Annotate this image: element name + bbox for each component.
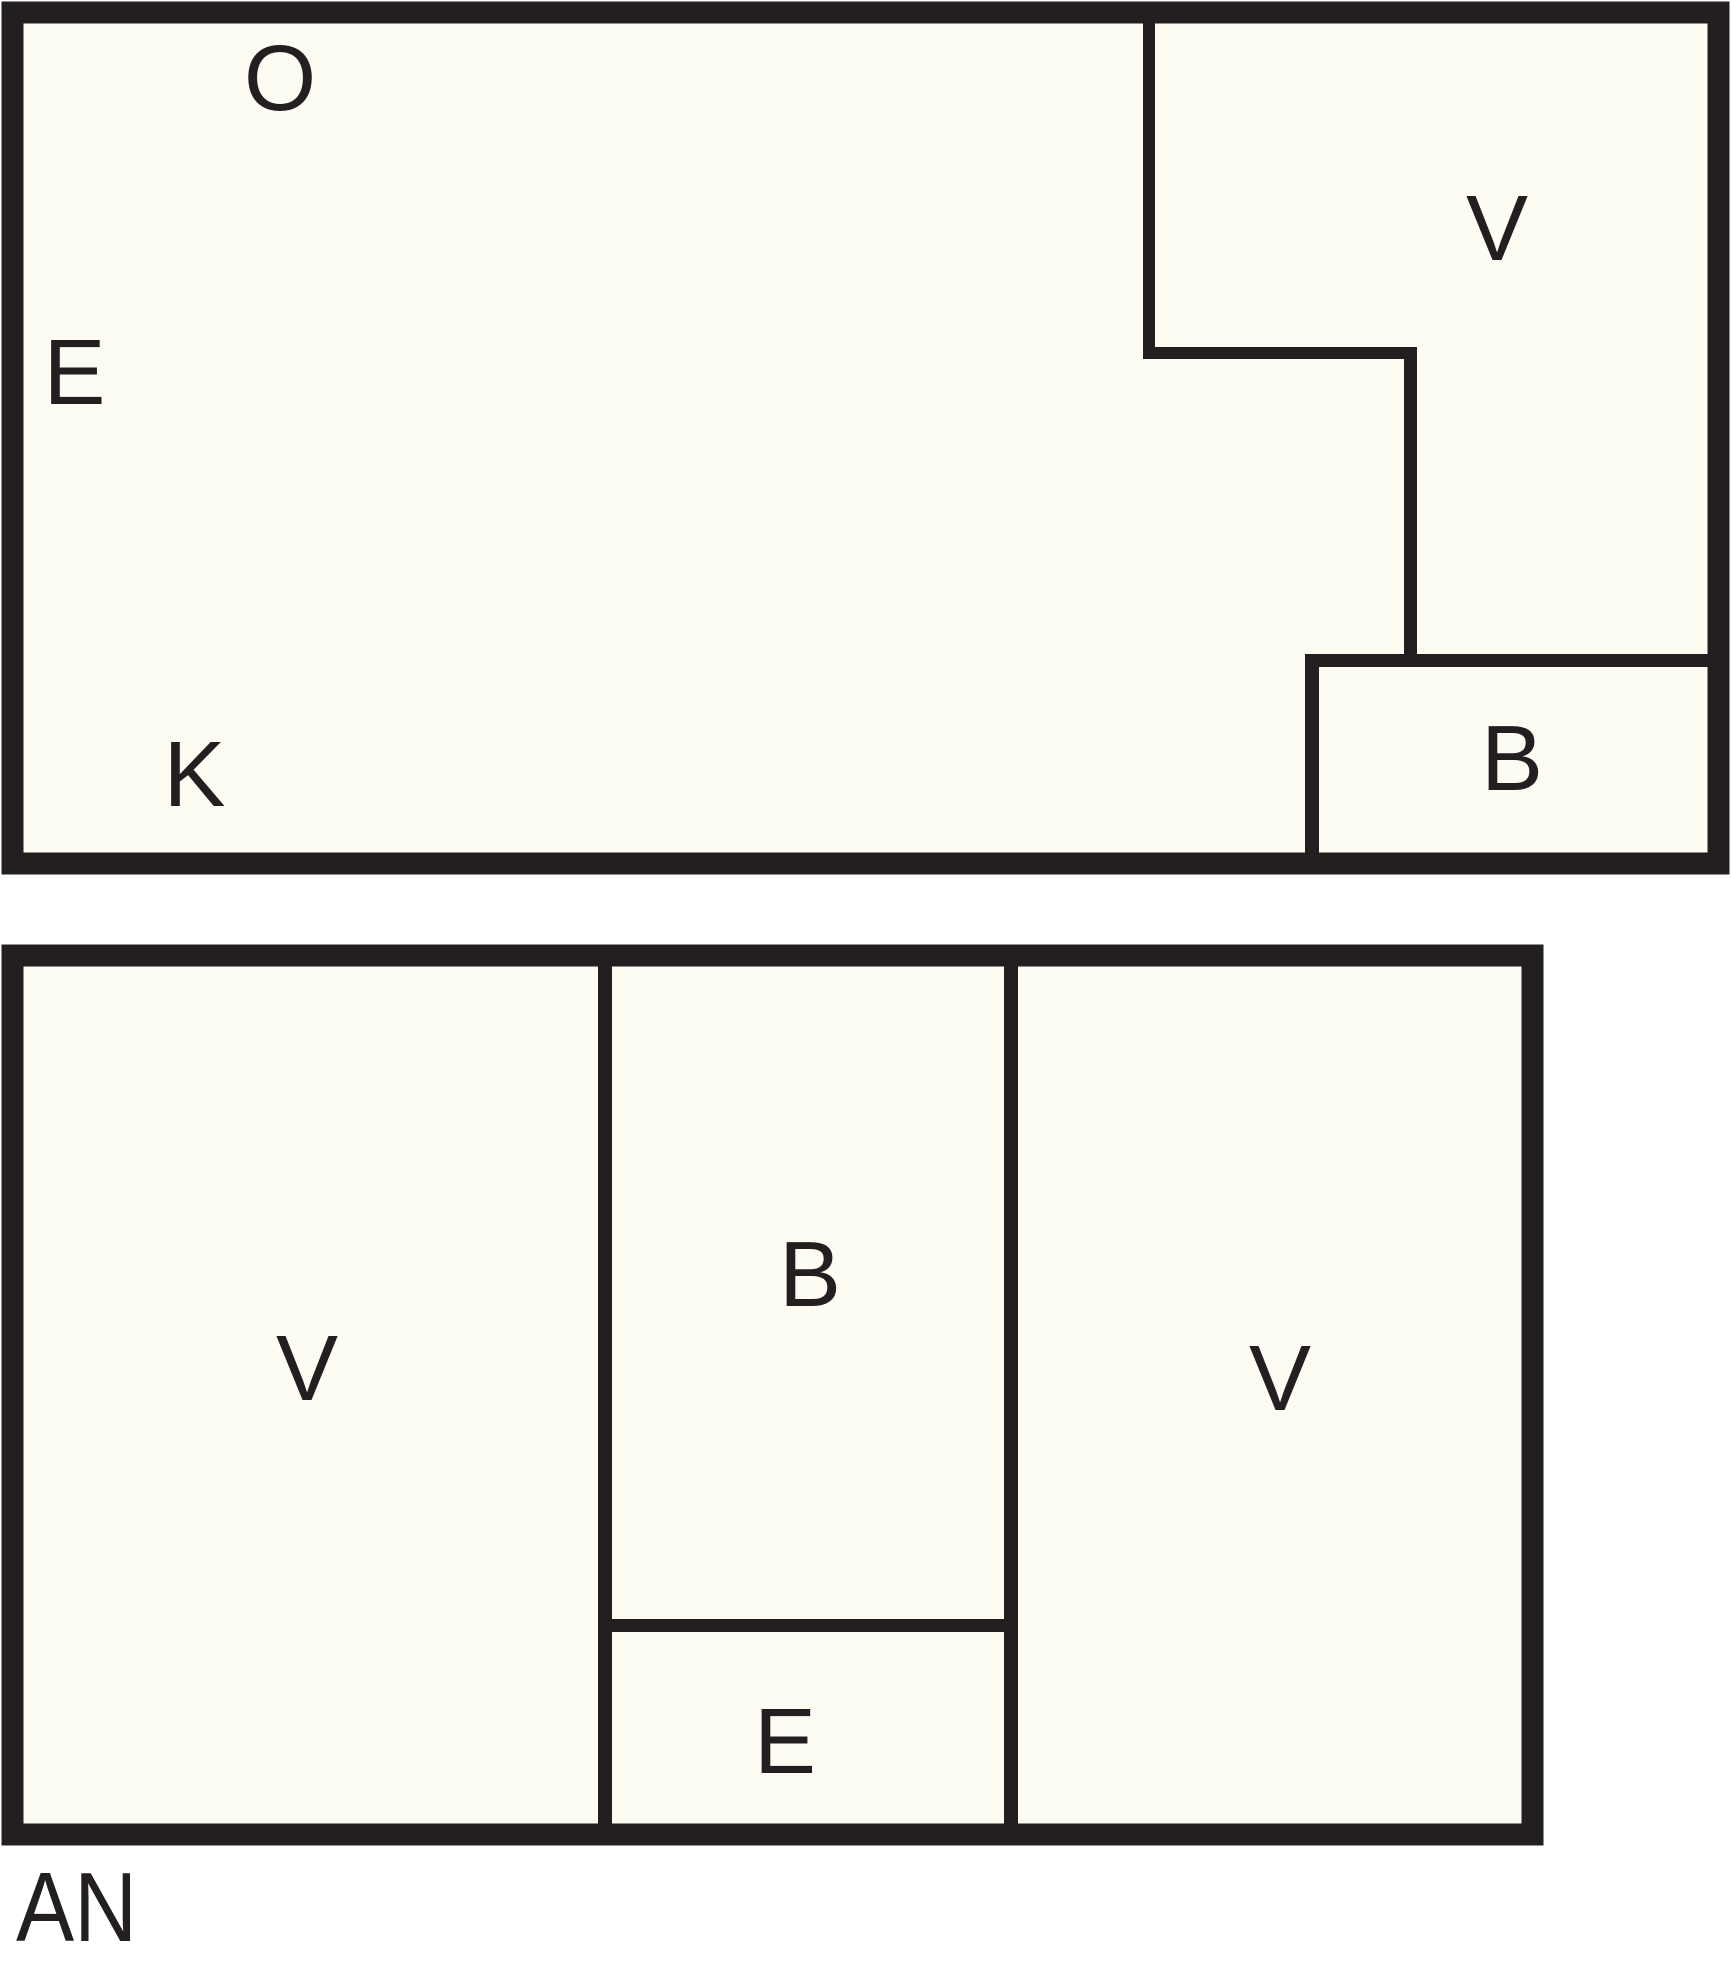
- svg-text:K: K: [163, 722, 225, 826]
- svg-text:V: V: [1249, 1326, 1311, 1430]
- svg-text:B: B: [779, 1222, 841, 1326]
- svg-text:E: E: [43, 320, 105, 424]
- svg-text:E: E: [754, 1689, 816, 1793]
- svg-text:AN: AN: [16, 1852, 137, 1962]
- svg-text:V: V: [276, 1316, 338, 1420]
- svg-text:O: O: [244, 26, 316, 130]
- svg-text:B: B: [1481, 706, 1543, 810]
- svg-text:V: V: [1466, 176, 1528, 280]
